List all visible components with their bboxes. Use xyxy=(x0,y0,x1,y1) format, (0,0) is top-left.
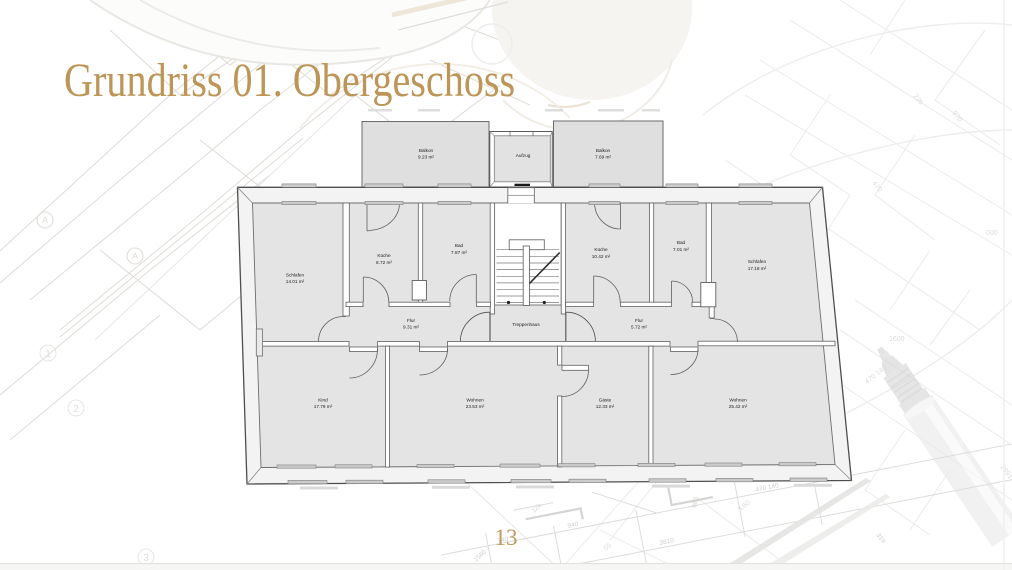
svg-text:236: 236 xyxy=(911,93,924,107)
svg-text:Balkon: Balkon xyxy=(596,148,611,153)
svg-text:17.18 m²: 17.18 m² xyxy=(748,266,767,271)
svg-text:A: A xyxy=(132,251,138,261)
svg-text:A: A xyxy=(42,215,48,225)
svg-text:Kind: Kind xyxy=(318,398,328,403)
svg-text:Schlafen: Schlafen xyxy=(748,259,767,264)
svg-text:970: 970 xyxy=(950,110,963,124)
svg-text:Schlafen: Schlafen xyxy=(286,273,305,278)
svg-text:7.87 m²: 7.87 m² xyxy=(451,250,467,255)
svg-text:25.42 m²: 25.42 m² xyxy=(729,404,748,409)
svg-text:23.53 m²: 23.53 m² xyxy=(466,404,485,409)
svg-text:9.31 m²: 9.31 m² xyxy=(403,325,419,330)
svg-text:470: 470 xyxy=(870,180,883,194)
svg-text:Aufzug: Aufzug xyxy=(516,153,531,158)
svg-text:Wohnen: Wohnen xyxy=(729,398,747,403)
svg-text:7.69 m²: 7.69 m² xyxy=(595,154,611,159)
svg-text:7.01 m²: 7.01 m² xyxy=(673,247,689,252)
svg-text:2: 2 xyxy=(73,404,79,415)
svg-text:000: 000 xyxy=(986,230,998,237)
svg-text:680: 680 xyxy=(691,496,700,508)
svg-text:Balkon: Balkon xyxy=(419,148,434,153)
svg-text:2891: 2891 xyxy=(998,464,1012,481)
svg-text:3: 3 xyxy=(143,553,149,564)
svg-text:10.42 m²: 10.42 m² xyxy=(592,254,611,259)
svg-text:1: 1 xyxy=(45,349,51,360)
svg-text:Flur: Flur xyxy=(635,318,644,323)
svg-text:Gäste: Gäste xyxy=(599,398,612,403)
svg-text:Bad: Bad xyxy=(455,243,464,248)
svg-text:14.01 m²: 14.01 m² xyxy=(286,279,305,284)
svg-text:5.72 m²: 5.72 m² xyxy=(631,325,647,330)
svg-text:Küche: Küche xyxy=(377,253,391,258)
svg-text:Bad: Bad xyxy=(677,240,686,245)
svg-text:12k: 12k xyxy=(531,502,544,515)
svg-text:Treppenhaus: Treppenhaus xyxy=(512,322,540,327)
svg-text:8.72 m²: 8.72 m² xyxy=(376,260,392,265)
svg-text:9.23 m²: 9.23 m² xyxy=(418,154,434,159)
svg-text:Wohnen: Wohnen xyxy=(466,398,484,403)
svg-text:12.33 m²: 12.33 m² xyxy=(596,404,615,409)
svg-text:Küche: Küche xyxy=(594,247,608,252)
svg-text:1600: 1600 xyxy=(889,336,905,343)
svg-text:470 140: 470 140 xyxy=(755,482,780,494)
svg-text:17.79 m²: 17.79 m² xyxy=(314,404,333,409)
svg-text:Flur: Flur xyxy=(407,318,416,323)
